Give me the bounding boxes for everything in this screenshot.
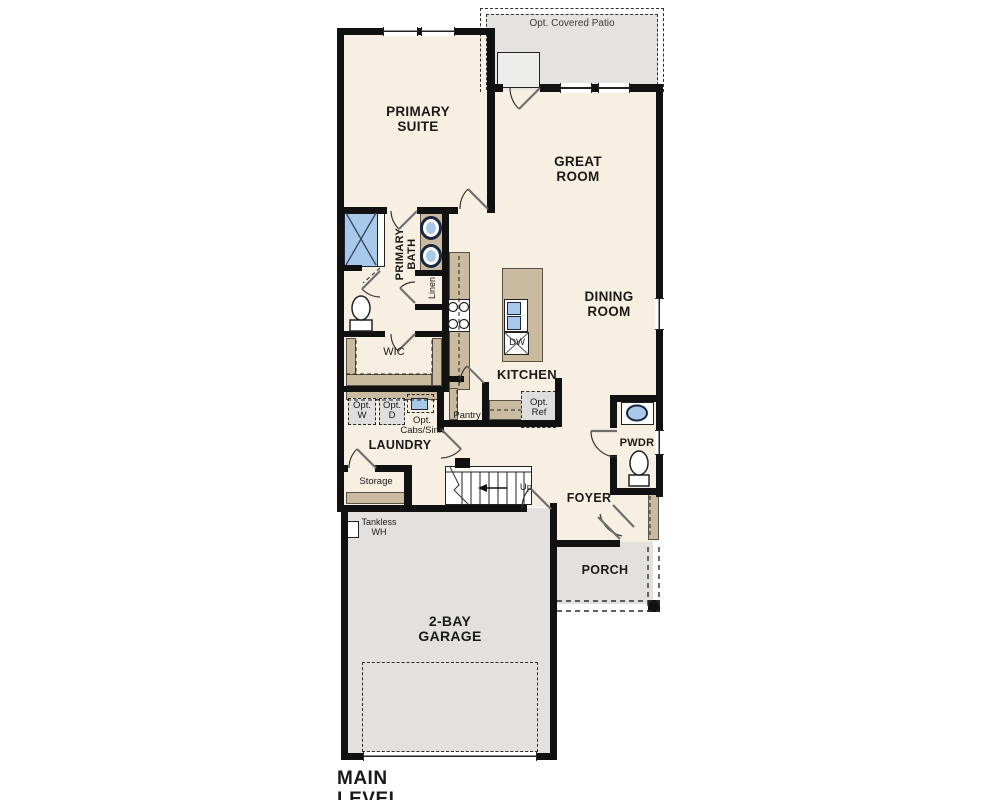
laundry-label: LAUNDRY [360, 439, 440, 453]
wall-porch-top [550, 540, 620, 547]
wall-wic-top [415, 331, 449, 337]
wall-garage-left [341, 505, 348, 760]
storage-shelf [346, 492, 406, 504]
window-greatroom-2 [598, 83, 630, 93]
opt-sink-bowl [411, 398, 428, 410]
foyer-wall-strip [648, 494, 659, 540]
opt-cabs-sink-label: Opt. Cabs/Sink [394, 416, 450, 437]
wall-pantry-top [442, 376, 464, 382]
powder-label: PWDR [618, 437, 656, 449]
wall-bath-divider [442, 211, 449, 392]
storage-label: Storage [355, 477, 397, 487]
floor-plan: Opt. Covered Patio PRIMARY SUITE GREAT R… [0, 0, 1000, 800]
island-sink-bowl-bottom [507, 316, 521, 330]
window-greatroom-1 [560, 83, 592, 93]
porch-post-icon [648, 600, 660, 612]
wall-powder-bottom [610, 488, 663, 495]
kitchen-label: KITCHEN [487, 368, 567, 382]
garage-door-dashed [362, 662, 538, 752]
window-dining [655, 298, 664, 330]
powder-vanity [621, 402, 654, 425]
window-powder [655, 430, 664, 455]
window-suite-1 [383, 27, 418, 36]
wall-linen-bottom [415, 304, 449, 310]
wic-shelf-right [432, 338, 442, 386]
garage-door-opening [363, 752, 537, 761]
kitchen-counter-right [489, 400, 522, 420]
wall-suite-bottom-a [341, 207, 387, 214]
opt-ref-label: Opt. Ref [525, 398, 553, 419]
wall-wic-bottom [337, 386, 449, 392]
shower-glass [377, 211, 385, 267]
wall-powder-left-a [610, 395, 617, 428]
bath-vanity-counter [420, 213, 443, 272]
garage-label: 2-BAY GARAGE [409, 614, 491, 645]
wic-shelf-bottom [346, 374, 432, 386]
wall-powder-top [610, 395, 663, 402]
wall-storage-top-a [337, 465, 348, 472]
shower-icon [344, 211, 378, 267]
wall-greatroom-top-a [491, 84, 503, 92]
wall-nook-bottom [337, 331, 385, 337]
linen-label: Linen [428, 272, 438, 304]
plan-title: MAIN LEVEL [337, 769, 457, 800]
wall-stairs-stub [455, 458, 470, 468]
patio-pad [497, 52, 540, 88]
dining-room-label: DINING ROOM [574, 290, 644, 320]
wall-ref-right [555, 378, 562, 427]
window-suite-2 [421, 27, 455, 36]
island-sink-bowl-top [507, 302, 521, 315]
tankless-wh-label: Tankless WH [355, 518, 403, 538]
porch-label: PORCH [580, 564, 630, 578]
primary-suite-label: PRIMARY SUITE [378, 105, 458, 135]
wall-suite-right [487, 31, 495, 213]
foyer-label: FOYER [564, 492, 614, 506]
great-room-label: GREAT ROOM [543, 155, 613, 185]
primary-bath-label: PRIMARY BATH [394, 224, 418, 284]
patio-label: Opt. Covered Patio [502, 18, 642, 29]
range-cooktop [447, 299, 470, 332]
wic-label: WIC [374, 346, 414, 358]
pantry-label: Pantry [450, 411, 484, 421]
opt-washer-label: Opt. W [350, 401, 374, 422]
wall-suite-bottom-b [417, 207, 458, 214]
wall-nook-top [337, 265, 362, 271]
main-open-floor [445, 211, 657, 507]
wall-storage-right [404, 465, 412, 510]
dishwasher-label: DW [505, 338, 529, 348]
wall-garage-top [341, 505, 527, 512]
great-room-floor [491, 90, 657, 211]
stairs-up-label: Up [516, 483, 536, 493]
